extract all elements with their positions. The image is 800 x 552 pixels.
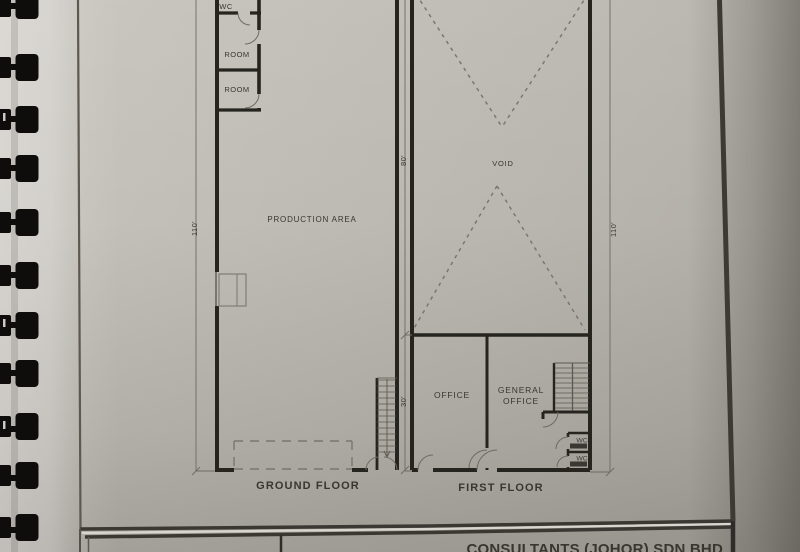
gf-dashed-bay: [234, 441, 352, 469]
binding-tooth: [0, 54, 39, 81]
binding-tooth: [0, 312, 39, 339]
ff-dim-height: 110': [609, 222, 618, 237]
gf-wall-opening-symbol: [219, 274, 246, 306]
gf-production-area-label: PRODUCTION AREA: [267, 215, 356, 224]
ground-floor-plan: 110' WC ROOM ROOM PRODUCTION AREA GROUND…: [190, 0, 397, 492]
sheet-borders: [78, 0, 733, 529]
title-block-company-name: CONSULTANTS (JOHOR) SDN BHD: [466, 541, 723, 552]
ff-title: FIRST FLOOR: [458, 482, 543, 494]
ff-wc-upper-label: WC: [576, 438, 587, 445]
ff-dim-void: 80': [399, 155, 408, 166]
binding-tooth: [0, 155, 39, 182]
gf-title: GROUND FLOOR: [256, 480, 360, 492]
binding-tooth: [0, 462, 39, 489]
sheet-right-border: [720, 0, 734, 521]
sheet-left-border: [78, 0, 81, 529]
ff-dim-office: 30': [399, 396, 408, 407]
gf-room-lower-label: ROOM: [224, 85, 249, 94]
binding-tooth: [0, 0, 39, 19]
gf-room-upper-label: ROOM: [224, 50, 249, 59]
gf-dimension: 110': [190, 0, 215, 475]
binding-tooth: [0, 360, 39, 387]
binding-tooth: [0, 262, 39, 289]
gf-stairs: [366, 378, 397, 470]
floor-plan-photo: 110' WC ROOM ROOM PRODUCTION AREA GROUND…: [0, 0, 800, 552]
gf-wc-label: WC: [219, 2, 233, 11]
first-floor-plan: WC WC 80' 30' 110' VOID OFFICE GENERAL O…: [399, 0, 618, 494]
ff-void-label: VOID: [492, 159, 514, 168]
gf-dim-height: 110': [190, 221, 199, 236]
floor-plan-sheet: 110' WC ROOM ROOM PRODUCTION AREA GROUND…: [0, 0, 800, 552]
ff-wc-block: WC WC: [556, 433, 590, 470]
ff-wc-lower-label: WC: [576, 456, 587, 463]
ff-stairs: [543, 363, 590, 427]
ff-general-office-line1: GENERAL: [498, 385, 544, 395]
binding-tooth: [0, 106, 39, 133]
ff-general-office-line2: OFFICE: [503, 396, 539, 406]
binding-tooth: [0, 514, 39, 541]
ff-office-label: OFFICE: [434, 390, 470, 400]
binding-tooth: [0, 209, 39, 236]
binding-tooth: [0, 413, 39, 440]
comb-binding: [0, 0, 39, 541]
